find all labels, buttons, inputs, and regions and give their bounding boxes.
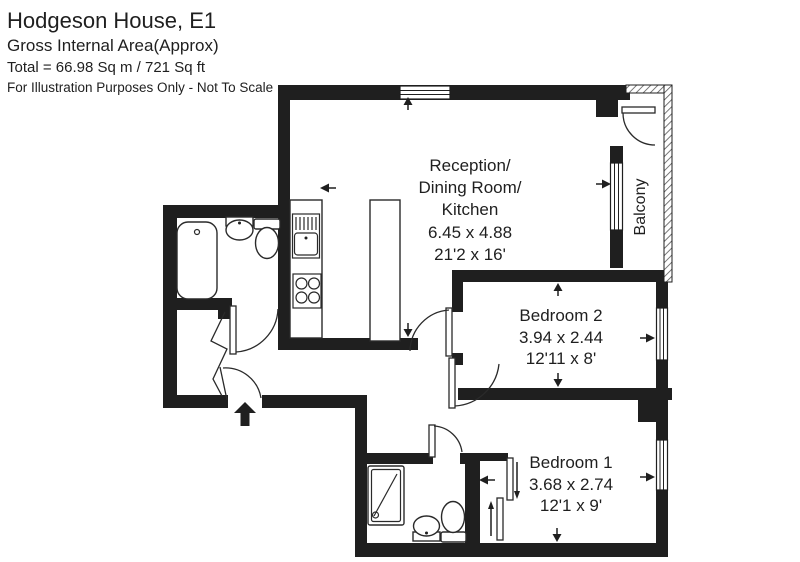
wall-bedroom2-west-upper bbox=[452, 270, 463, 312]
bedroom2-dim-metric: 3.94 x 2.44 bbox=[519, 328, 603, 347]
kitchen-island bbox=[370, 200, 400, 341]
reception-dim-imperial: 21'2 x 16' bbox=[434, 245, 506, 264]
bedroom2-dim-imperial: 12'11 x 8' bbox=[526, 349, 596, 368]
marker-bedroom2-bottom bbox=[554, 373, 563, 387]
shower-room-toilet bbox=[441, 502, 466, 543]
shower-room-door bbox=[429, 425, 462, 457]
marker-bedroom1-window bbox=[640, 473, 655, 482]
balcony-railing-right bbox=[664, 85, 672, 282]
wall-hall-bottom-right bbox=[262, 395, 367, 408]
bathroom-sink bbox=[226, 217, 253, 240]
marker-reception-left bbox=[320, 184, 336, 193]
wall-shower-west bbox=[355, 400, 367, 557]
balcony-label: Balcony bbox=[632, 179, 649, 236]
wardrobe-sliding-doors bbox=[488, 458, 520, 540]
marker-reception-bottom bbox=[404, 323, 413, 337]
wall-bedroom1-top-stub bbox=[468, 453, 508, 461]
closet-bifold-doors bbox=[211, 312, 227, 396]
bedroom1-dim-imperial: 12'1 x 9' bbox=[540, 496, 602, 515]
entrance-arrow bbox=[234, 402, 256, 426]
wall-bottom-outer bbox=[355, 543, 668, 557]
shower-tray bbox=[368, 466, 404, 525]
wall-bedroom2-top bbox=[452, 270, 672, 282]
bedroom1-dim-metric: 3.68 x 2.74 bbox=[529, 475, 613, 494]
windows bbox=[400, 86, 668, 490]
bathtub bbox=[177, 222, 217, 299]
wall-bathroom-top bbox=[163, 205, 290, 218]
marker-bedroom2-top bbox=[554, 283, 563, 296]
inner-hall-door bbox=[449, 358, 499, 408]
window-balcony bbox=[611, 163, 623, 230]
reception-label-line2: Dining Room/ bbox=[419, 178, 522, 197]
shower-room-sink bbox=[413, 516, 440, 541]
reception-label-line3: Kitchen bbox=[442, 200, 499, 219]
floorplan-page: Hodgeson House, E1 Gross Internal Area(A… bbox=[0, 0, 800, 562]
wall-reception-top bbox=[278, 85, 630, 100]
bedroom1-label: Bedroom 1 bbox=[529, 453, 612, 472]
window-bedroom1 bbox=[657, 440, 668, 490]
marker-bedroom1-bottom bbox=[553, 528, 562, 542]
wall-shower-top-left bbox=[367, 453, 433, 464]
entrance-door bbox=[220, 367, 261, 400]
window-reception-top bbox=[400, 86, 450, 99]
bathroom-toilet bbox=[254, 219, 280, 259]
wall-bedroom-divider bbox=[458, 388, 672, 400]
wall-step-top-right bbox=[596, 100, 618, 117]
reception-dim-metric: 6.45 x 4.88 bbox=[428, 223, 512, 242]
bedroom2-label: Bedroom 2 bbox=[519, 306, 602, 325]
floorplan-drawing: Reception/ Dining Room/ Kitchen 6.45 x 4… bbox=[0, 0, 800, 562]
reception-label-line1: Reception/ bbox=[429, 156, 511, 175]
bathroom-door bbox=[230, 306, 278, 354]
kitchen-counter bbox=[290, 200, 322, 338]
balcony-door bbox=[622, 107, 655, 145]
wall-bedroom1-west bbox=[468, 453, 480, 557]
marker-bedroom1-left bbox=[479, 476, 495, 485]
marker-balcony-window bbox=[596, 180, 611, 189]
marker-bedroom2-window bbox=[640, 334, 655, 343]
window-bedroom2 bbox=[657, 308, 668, 360]
